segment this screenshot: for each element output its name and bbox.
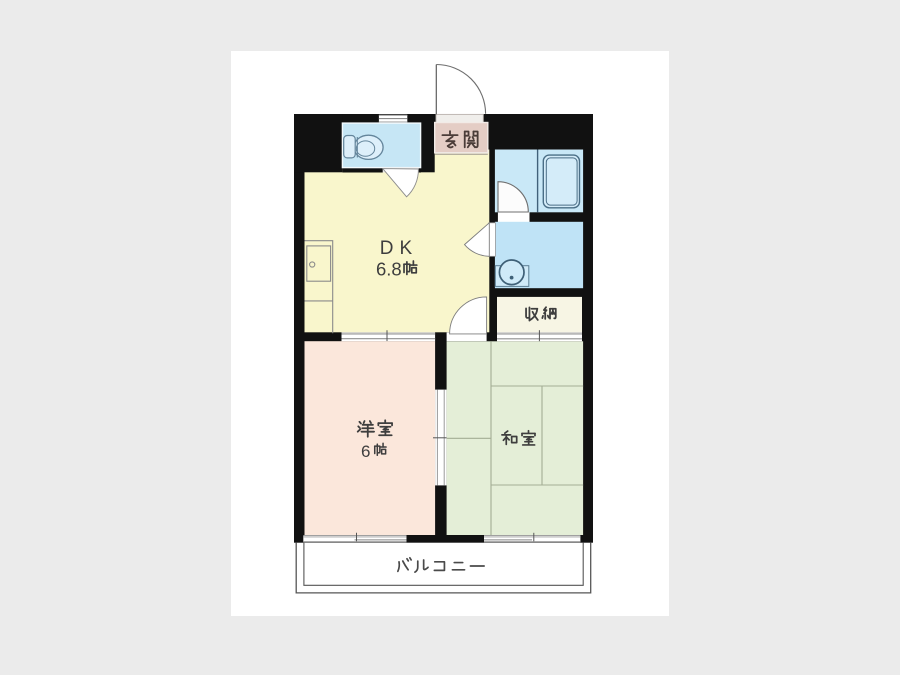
svg-text:DK: DK	[380, 238, 418, 259]
svg-text:6.8: 6.8	[376, 259, 402, 280]
svg-text:6: 6	[361, 442, 370, 461]
